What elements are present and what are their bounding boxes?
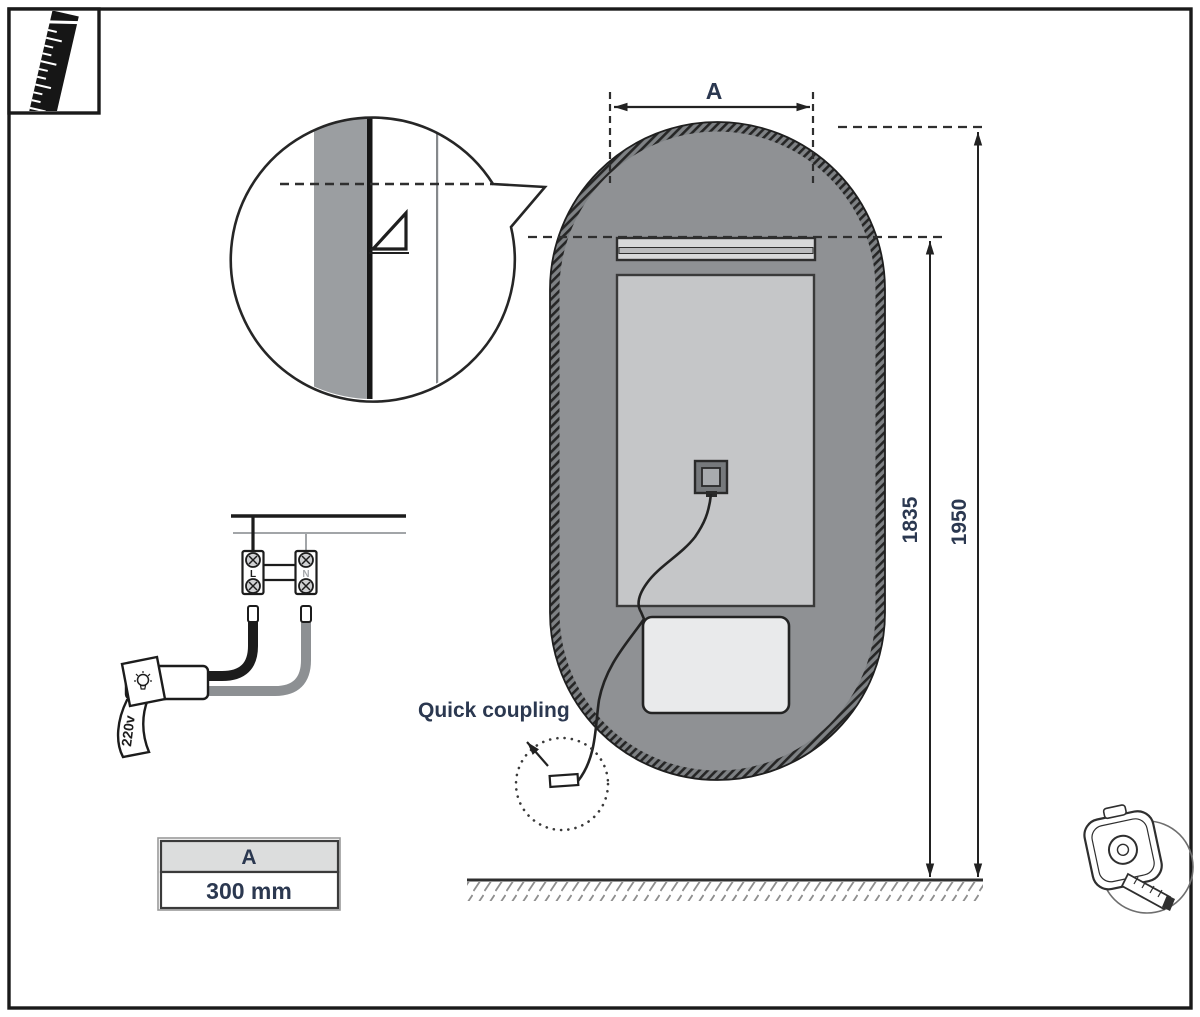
ruler-icon-box bbox=[9, 9, 99, 120]
live-ferrule-tip bbox=[248, 606, 258, 622]
junction-box bbox=[643, 617, 789, 713]
tape-measure-icon bbox=[1080, 799, 1193, 913]
neutral-ferrule-tip bbox=[301, 606, 311, 622]
terminal-neutral-label: N bbox=[302, 569, 309, 580]
detail-balloon bbox=[231, 116, 545, 402]
ground bbox=[467, 880, 983, 901]
wall-face-line bbox=[367, 116, 373, 402]
size-table-header-text: A bbox=[241, 846, 256, 869]
quick-coupling-connector bbox=[550, 774, 579, 787]
heater-body bbox=[550, 122, 885, 781]
balloon-body bbox=[231, 118, 545, 402]
size-table-value-text: 300 mm bbox=[206, 878, 292, 904]
wall-band bbox=[314, 116, 367, 402]
quick-coupling-label: Quick coupling bbox=[418, 699, 570, 722]
back-panel bbox=[617, 275, 814, 606]
power-connector bbox=[695, 461, 727, 497]
installation-diagram-page: A 1950 1835 Quick coupling bbox=[0, 0, 1200, 1017]
mounting-rail bbox=[617, 238, 815, 260]
mounting-rail-groove bbox=[619, 248, 813, 254]
wiring-diagram: L N 220v bbox=[118, 516, 406, 757]
dimension-1835-label: 1835 bbox=[899, 496, 922, 543]
heater-rear-line bbox=[436, 116, 438, 402]
dimension-a-label: A bbox=[706, 78, 723, 104]
size-table: A 300 mm bbox=[158, 838, 340, 910]
dimension-1950-label: 1950 bbox=[948, 499, 971, 546]
live-cable bbox=[206, 622, 253, 676]
diagram-canvas: A 1950 1835 Quick coupling bbox=[0, 0, 1200, 1017]
terminal-live-label: L bbox=[250, 569, 256, 580]
ground-hatch bbox=[467, 882, 983, 901]
quick-coupling: Quick coupling bbox=[418, 699, 608, 830]
